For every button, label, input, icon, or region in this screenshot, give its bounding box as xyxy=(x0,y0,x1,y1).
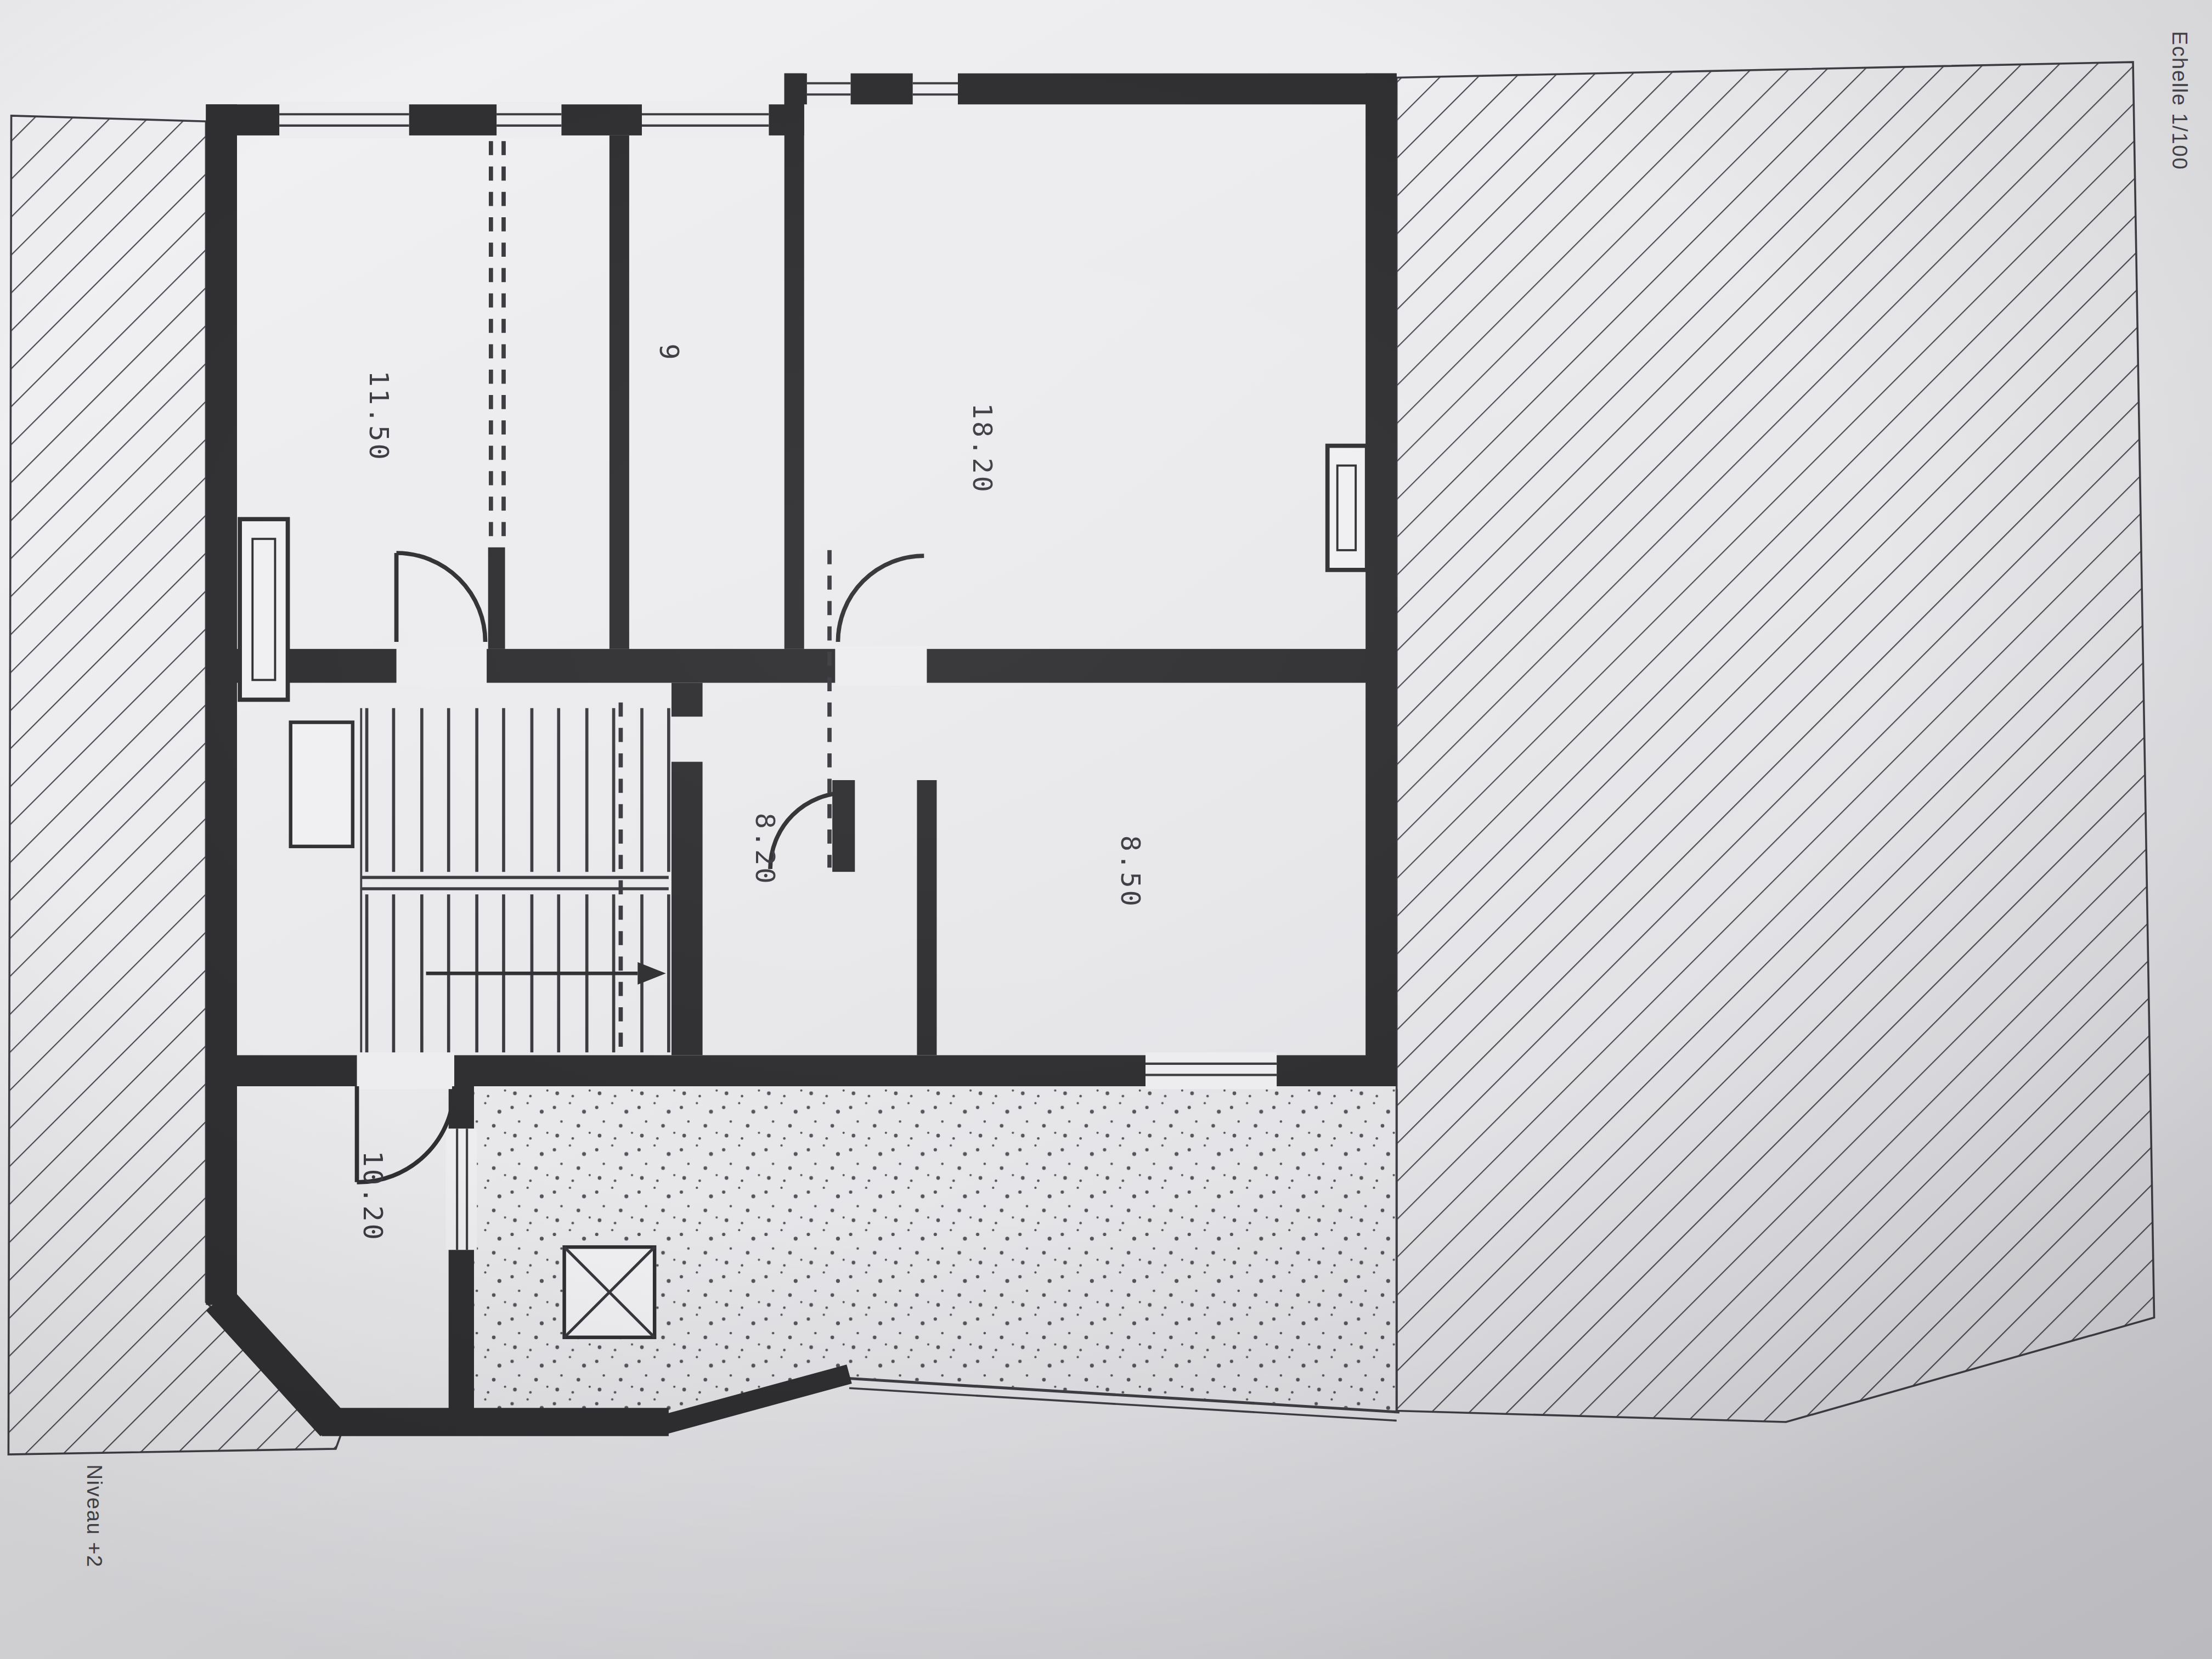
door-arc-room1820 xyxy=(838,556,924,642)
floor-plan-drawing: 11.50 9 18.20 8.20 8.50 10.20 Echelle 1/… xyxy=(0,0,2212,1659)
skylight-x-box xyxy=(565,1247,655,1338)
scale-label: Echelle 1/100 xyxy=(2168,31,2192,171)
window-gap-4 xyxy=(807,71,851,108)
room-label-1020: 10.20 xyxy=(357,1150,388,1242)
exterior-wall-top-right-section xyxy=(785,74,1397,105)
stair-arrow-head-icon xyxy=(637,962,665,985)
floor-plan-photo: 11.50 9 18.20 8.20 8.50 10.20 Echelle 1/… xyxy=(0,0,2212,1659)
window-gap-terrace-door xyxy=(1145,1052,1277,1089)
window-gap-3 xyxy=(642,101,769,138)
room-label-820: 8.20 xyxy=(749,812,781,885)
duct-closet-box xyxy=(291,723,353,847)
door-opening-vestibule xyxy=(835,646,927,686)
wall-room1820-left xyxy=(785,74,804,649)
window-gap-room1020 xyxy=(446,1128,477,1250)
window-gap-5 xyxy=(913,71,958,108)
interior-wall-main-horizontal xyxy=(206,649,1396,683)
partition-stub xyxy=(488,548,505,649)
room-label-1150: 11.50 xyxy=(363,370,394,461)
radiator-icon xyxy=(240,519,287,699)
window-gap-1 xyxy=(279,101,409,138)
wall-room850-left xyxy=(917,780,936,1055)
room-label-850: 8.50 xyxy=(1115,836,1146,909)
exterior-wall-left xyxy=(206,104,237,1305)
stairwell-wall-stub xyxy=(672,683,703,717)
dashed-lines xyxy=(491,141,830,1049)
stairwell-right-wall xyxy=(672,762,703,1056)
wall-room9-right xyxy=(610,136,629,649)
radiator-icon xyxy=(1328,446,1367,570)
door-arc-room1150 xyxy=(397,553,486,642)
room-label-9: 9 xyxy=(653,343,685,362)
door-opening-room1150 xyxy=(397,646,487,686)
exterior-wall-right xyxy=(1365,74,1397,1086)
room-label-1820: 18.20 xyxy=(967,403,998,494)
roof-hatch-right xyxy=(1365,62,2154,1422)
level-label: Niveau +2 xyxy=(83,1464,106,1568)
door-opening-room1020 xyxy=(357,1052,454,1089)
window-gap-2 xyxy=(496,101,561,138)
bottom-wall xyxy=(321,1408,669,1436)
